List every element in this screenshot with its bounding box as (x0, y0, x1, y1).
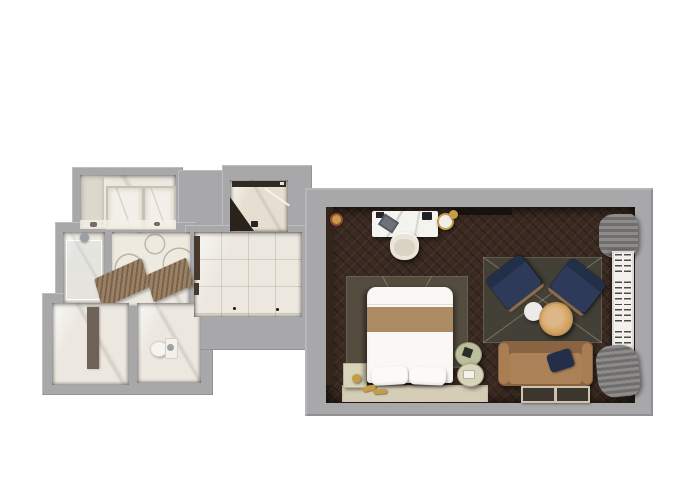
desk-chair (390, 232, 419, 260)
marble-panel (82, 177, 104, 225)
coffee-table-oak (539, 302, 573, 336)
room-wardrobe (230, 180, 288, 232)
closet-rod-end (280, 182, 284, 185)
wall-fixture (330, 213, 343, 226)
door-stop (276, 308, 279, 311)
duvet-fold (367, 304, 453, 305)
shuttered-window (612, 251, 634, 351)
slipper (373, 389, 387, 395)
floor-mat (555, 386, 590, 403)
floorplan-scene (0, 0, 700, 500)
flush-button (167, 344, 174, 351)
table-item (464, 371, 474, 378)
curtain-bottom (594, 343, 641, 399)
door-frame (194, 283, 199, 295)
sofa (498, 341, 593, 386)
tv (452, 208, 512, 215)
desk-phone (422, 212, 432, 220)
shutter-slats (615, 254, 622, 348)
floor-mat (521, 386, 556, 403)
door-frame (194, 236, 200, 280)
shower-head (80, 233, 89, 242)
bed-throw-band (367, 307, 453, 332)
brass-tray (449, 210, 458, 219)
mirror-edge (264, 188, 290, 207)
room-hallway (194, 232, 302, 317)
pillow (409, 366, 447, 385)
room-walk-in-shower (52, 303, 129, 385)
table-item (462, 347, 474, 359)
closet-item (251, 221, 258, 227)
dark-wall-panel (326, 207, 333, 385)
shutter-slats (624, 254, 631, 348)
door-stop (233, 307, 236, 310)
closet-rod (232, 181, 286, 187)
faucet-fixture (154, 222, 160, 226)
faucet-fixture (90, 222, 97, 227)
brass-lamp (352, 374, 361, 383)
pillow (371, 366, 409, 386)
shower-column (87, 307, 99, 369)
sofa-arm (582, 343, 592, 384)
sofa-arm (499, 343, 509, 384)
side-table (457, 363, 484, 387)
room-bathroom (80, 175, 176, 229)
chair-seat (394, 239, 415, 256)
room-toilet (137, 303, 201, 383)
